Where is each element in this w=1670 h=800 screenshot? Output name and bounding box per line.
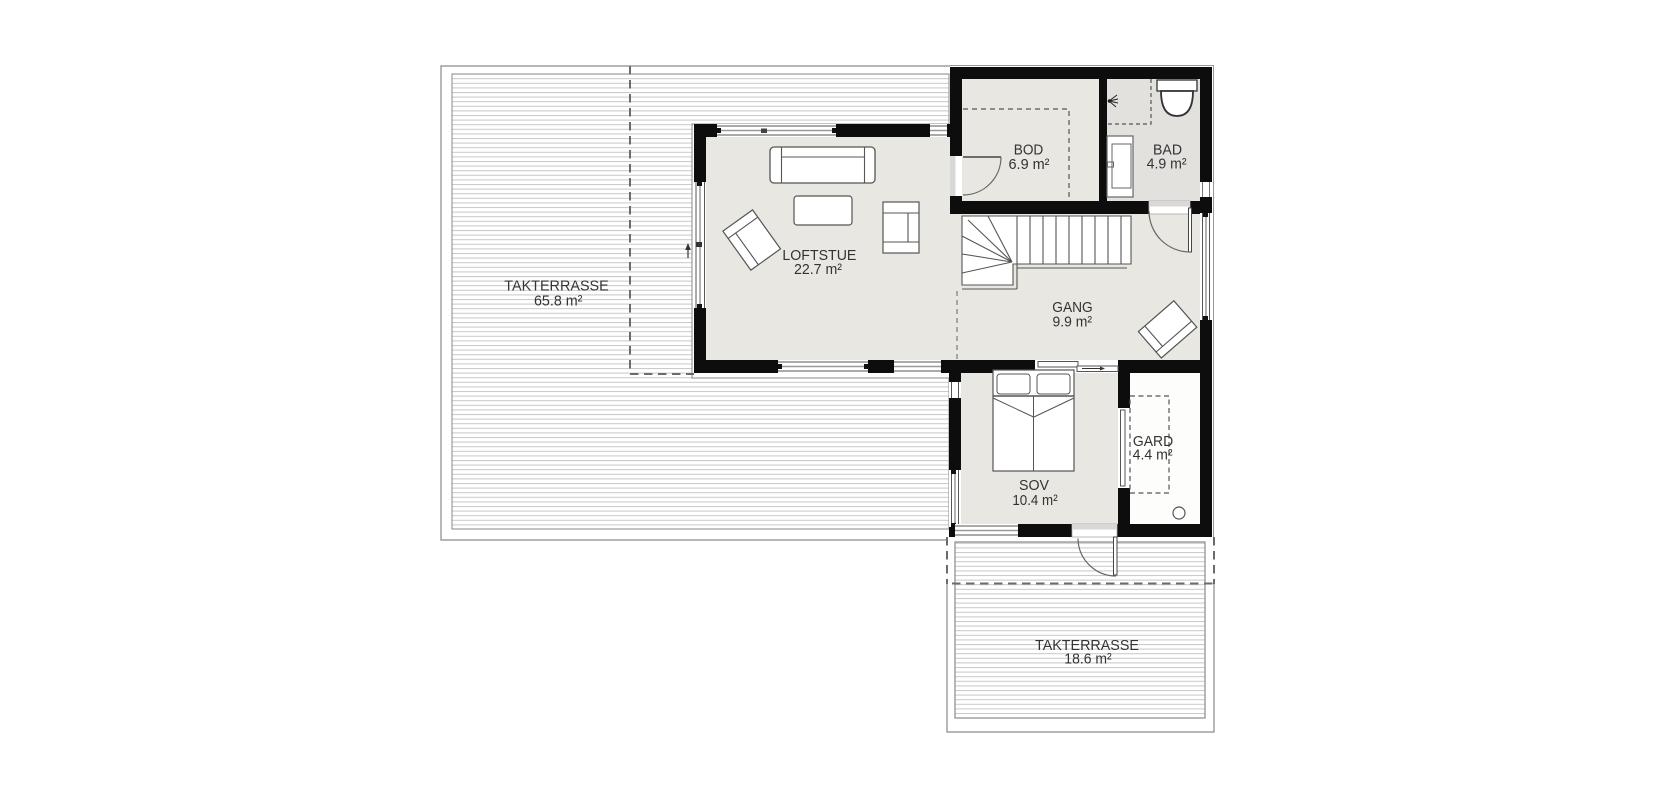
svg-text:18.6 m²: 18.6 m² (1064, 651, 1111, 668)
svg-text:4.9 m²: 4.9 m² (1147, 156, 1187, 173)
svg-text:65.8 m²: 65.8 m² (534, 292, 583, 309)
svg-text:4.4 m²: 4.4 m² (1133, 447, 1173, 464)
svg-text:22.7 m²: 22.7 m² (794, 261, 842, 278)
svg-text:10.4 m²: 10.4 m² (1012, 492, 1057, 509)
svg-text:9.9 m²: 9.9 m² (1053, 313, 1093, 330)
svg-text:6.9 m²: 6.9 m² (1009, 156, 1050, 173)
